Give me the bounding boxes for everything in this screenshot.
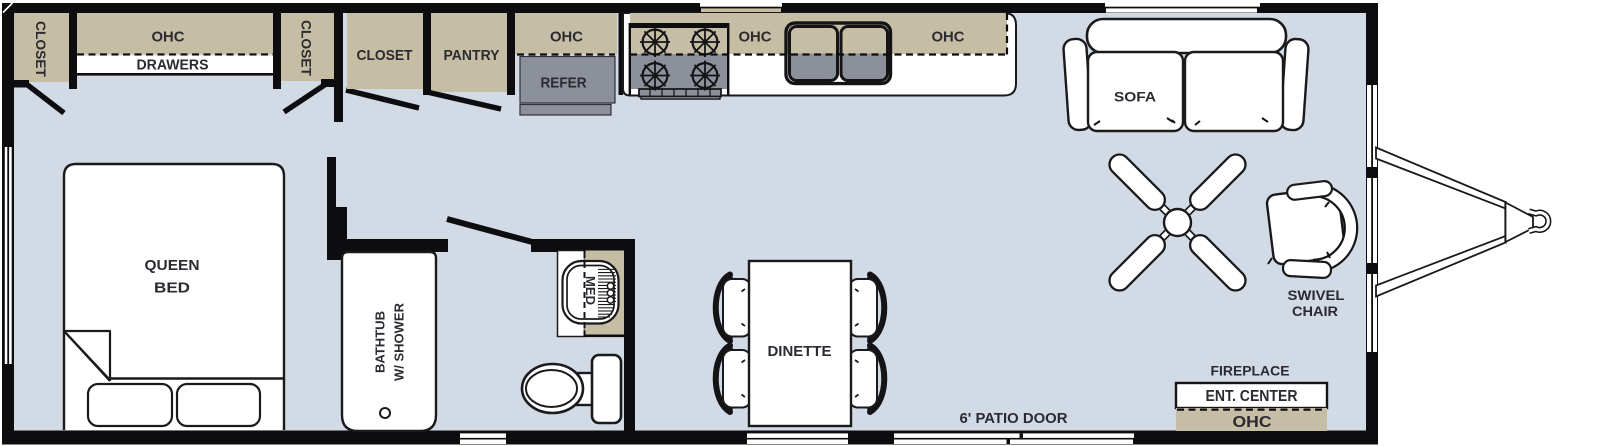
svg-text:SOFA: SOFA (1114, 89, 1156, 105)
svg-text:CLOSET: CLOSET (33, 21, 48, 78)
svg-text:DINETTE: DINETTE (768, 344, 832, 360)
svg-text:FIREPLACE: FIREPLACE (1211, 364, 1290, 379)
svg-text:ENT. CENTER: ENT. CENTER (1206, 388, 1298, 405)
svg-text:OHC: OHC (1233, 414, 1272, 431)
svg-text:CHAIR: CHAIR (1292, 304, 1338, 319)
svg-text:QUEEN: QUEEN (145, 257, 200, 274)
svg-text:OHC: OHC (152, 29, 185, 46)
svg-text:REFER: REFER (541, 75, 587, 92)
svg-text:CLOSET: CLOSET (357, 47, 413, 64)
svg-text:OHC: OHC (739, 29, 772, 46)
svg-text:PANTRY: PANTRY (444, 47, 500, 64)
svg-text:CLOSET: CLOSET (299, 20, 314, 77)
svg-text:SWIVEL: SWIVEL (1288, 288, 1345, 303)
svg-text:MED: MED (583, 276, 597, 305)
svg-text:BED: BED (154, 280, 190, 297)
svg-text:W/ SHOWER: W/ SHOWER (392, 302, 407, 381)
svg-text:6' PATIO DOOR: 6' PATIO DOOR (960, 411, 1069, 427)
svg-text:OHC: OHC (932, 29, 965, 46)
svg-text:OHC: OHC (550, 29, 583, 46)
svg-text:BATHTUB: BATHTUB (373, 311, 388, 373)
svg-text:DRAWERS: DRAWERS (137, 57, 209, 74)
